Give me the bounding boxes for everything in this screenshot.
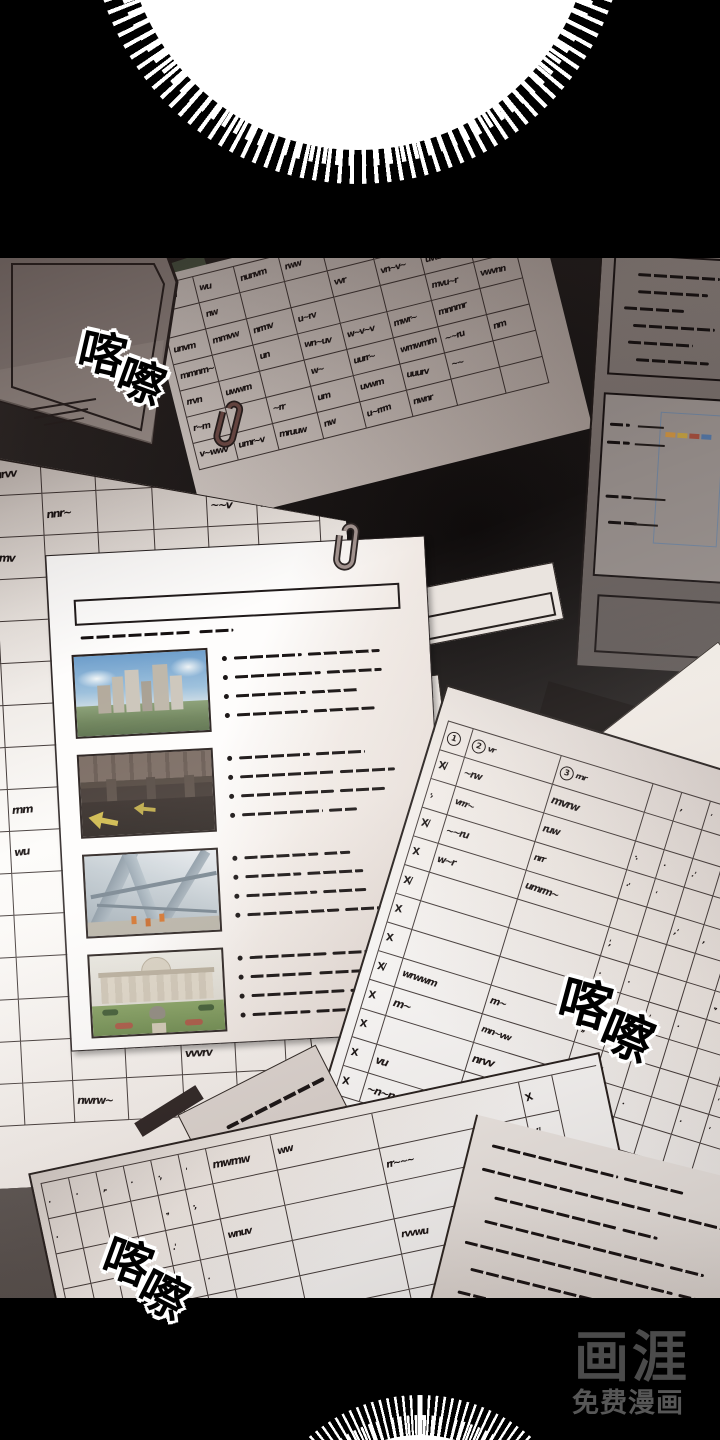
paper-table-topcenter: wvnwununvmrwwv~v~nwvvrvn~v~uvumnrr~unvmm…: [143, 258, 592, 525]
report-text-box: [607, 258, 720, 382]
flash-spikes: [108, 0, 608, 166]
photo-construction-site: [82, 848, 222, 939]
bullet-list: [227, 736, 436, 831]
report-diagram-box: [593, 392, 720, 584]
paperclip-icon: [331, 515, 366, 578]
desk-scene: wvnwununvmrwwv~v~nwvvrvn~v~uvumnrr~unvmm…: [0, 258, 720, 1298]
diagram-chip: [701, 434, 711, 440]
report-section: [72, 636, 431, 738]
table-cell: [96, 488, 154, 533]
table-cell: [14, 913, 66, 958]
diagram-label: [608, 521, 637, 526]
table-cell: [12, 871, 64, 916]
diagram-chip: [677, 433, 687, 439]
paper-report-topright: [575, 258, 720, 674]
diagram-label: [610, 423, 630, 428]
table-cell: [17, 955, 69, 1000]
diagram-label: [607, 440, 630, 445]
table-cell: [19, 997, 71, 1042]
comic-panel: wvnwununvmrwwv~v~nwvvrvn~v~uvumnrr~unvmm…: [0, 0, 720, 1440]
table-cell: mv: [0, 536, 47, 581]
table-cell: [0, 1042, 23, 1086]
table-cell: [1, 662, 53, 707]
table-cell: [6, 745, 58, 790]
table-cell: [0, 620, 51, 665]
diagram-arrow: [634, 523, 658, 526]
flash-spikes: [90, 0, 626, 184]
diagram-chip: [665, 432, 675, 438]
photo-city-skyline: [72, 648, 212, 739]
table-cell: [3, 703, 55, 748]
photo-parking-garage: [77, 748, 217, 839]
diagram-chips: [665, 422, 718, 444]
diagram-chip: [689, 434, 699, 440]
table-cell: [0, 1084, 25, 1128]
diagram-arrow: [638, 425, 664, 428]
report-title-box: [74, 583, 401, 626]
report-heading-scribble: [81, 629, 234, 640]
strip-label-box: [418, 592, 556, 642]
watermark-logo: 画涯: [574, 1312, 690, 1392]
table-cell: nwrw~: [73, 1078, 129, 1123]
watermark-tagline: 免费漫画: [572, 1381, 684, 1420]
table-cell: [23, 1081, 75, 1126]
table-cell: [0, 494, 45, 539]
table-cell: [0, 578, 49, 623]
bullet-list: [221, 636, 430, 731]
scribble-lines: [615, 265, 720, 374]
table-cell: rnm: [8, 787, 60, 832]
table-cell: nnr~: [42, 491, 98, 536]
diagram-label: [605, 495, 631, 500]
table-cell: [21, 1039, 73, 1084]
flash-core: [124, 0, 592, 150]
report-text-box: [594, 594, 720, 660]
photo-domed-building: [87, 948, 227, 1039]
report-section: [77, 736, 436, 838]
table-cell: vw: [0, 1000, 21, 1044]
table-cell: wu: [10, 829, 62, 874]
